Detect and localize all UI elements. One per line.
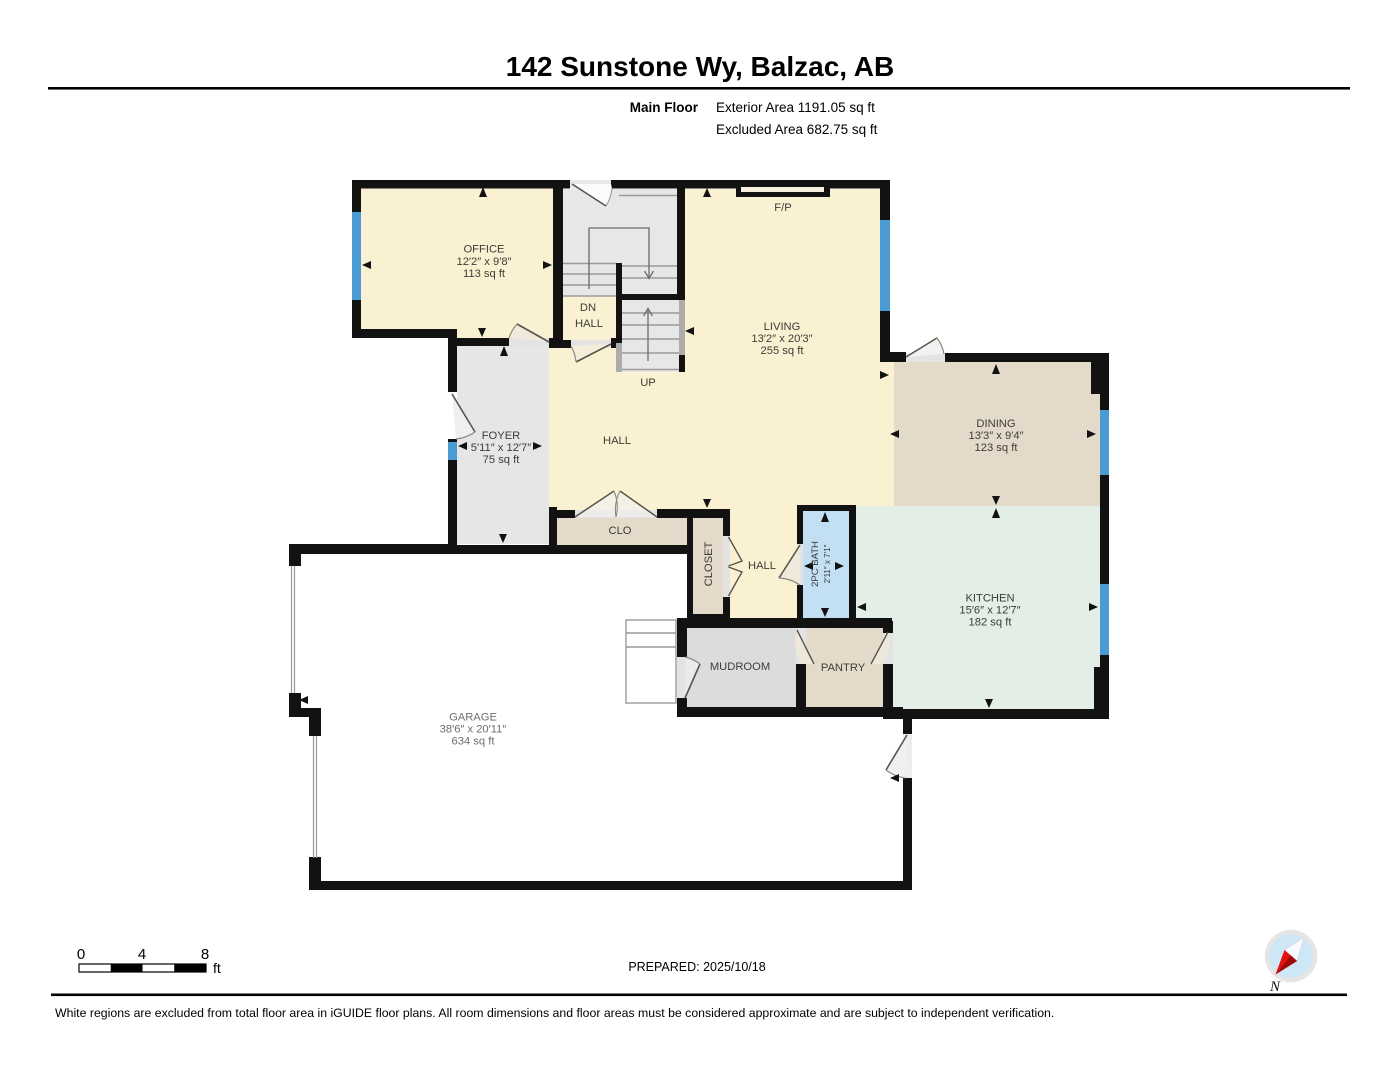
svg-text:KITCHEN: KITCHEN bbox=[965, 593, 1014, 605]
svg-text:PREPARED: 2025/10/18: PREPARED: 2025/10/18 bbox=[628, 960, 765, 974]
svg-text:UP: UP bbox=[640, 377, 656, 389]
svg-text:F/P: F/P bbox=[774, 202, 791, 214]
svg-text:Excluded Area 682.75 sq ft: Excluded Area 682.75 sq ft bbox=[716, 122, 878, 137]
svg-text:HALL: HALL bbox=[748, 560, 776, 572]
svg-text:OFFICE: OFFICE bbox=[463, 244, 504, 256]
svg-text:15′6″ x 12′7″: 15′6″ x 12′7″ bbox=[959, 605, 1020, 617]
svg-text:HALL: HALL bbox=[603, 435, 631, 447]
svg-text:113 sq ft: 113 sq ft bbox=[463, 268, 506, 280]
svg-text:LIVING: LIVING bbox=[764, 321, 801, 333]
svg-text:GARAGE: GARAGE bbox=[449, 712, 497, 724]
svg-text:Exterior Area 1191.05 sq ft: Exterior Area 1191.05 sq ft bbox=[716, 100, 875, 115]
svg-text:75 sq ft: 75 sq ft bbox=[483, 454, 521, 466]
svg-text:5′11″ x 12′7″: 5′11″ x 12′7″ bbox=[471, 442, 531, 454]
svg-text:Main Floor: Main Floor bbox=[630, 100, 699, 115]
svg-text:12′2″ x 9′8″: 12′2″ x 9′8″ bbox=[456, 256, 511, 268]
svg-text:38′6″ x 20′11″: 38′6″ x 20′11″ bbox=[440, 724, 507, 736]
svg-text:8: 8 bbox=[201, 946, 209, 963]
svg-text:HALL: HALL bbox=[575, 318, 603, 330]
svg-text:255 sq ft: 255 sq ft bbox=[761, 345, 805, 357]
svg-text:634 sq ft: 634 sq ft bbox=[452, 736, 496, 748]
svg-text:2′11″ x 7′1″: 2′11″ x 7′1″ bbox=[823, 544, 832, 583]
svg-text:DINING: DINING bbox=[976, 418, 1015, 430]
svg-text:N: N bbox=[1269, 979, 1281, 995]
svg-text:142 Sunstone Wy, Balzac, AB: 142 Sunstone Wy, Balzac, AB bbox=[506, 51, 895, 82]
svg-text:182 sq ft: 182 sq ft bbox=[969, 617, 1013, 629]
svg-text:4: 4 bbox=[138, 946, 146, 963]
svg-text:123 sq ft: 123 sq ft bbox=[975, 442, 1019, 454]
svg-text:13′2″ x 20′3″: 13′2″ x 20′3″ bbox=[751, 333, 812, 345]
svg-text:White regions are excluded fro: White regions are excluded from total fl… bbox=[55, 1006, 1054, 1020]
svg-text:13′3″ x 9′4″: 13′3″ x 9′4″ bbox=[968, 430, 1023, 442]
svg-text:CLOSET: CLOSET bbox=[703, 541, 715, 586]
svg-text:FOYER: FOYER bbox=[482, 430, 521, 442]
svg-text:PANTRY: PANTRY bbox=[821, 662, 866, 674]
svg-text:CLO: CLO bbox=[608, 525, 631, 537]
svg-text:2PC BATH: 2PC BATH bbox=[810, 541, 821, 587]
svg-text:DN: DN bbox=[580, 302, 596, 314]
svg-text:ft: ft bbox=[213, 960, 221, 976]
svg-text:MUDROOM: MUDROOM bbox=[710, 661, 770, 673]
svg-text:0: 0 bbox=[77, 946, 85, 963]
